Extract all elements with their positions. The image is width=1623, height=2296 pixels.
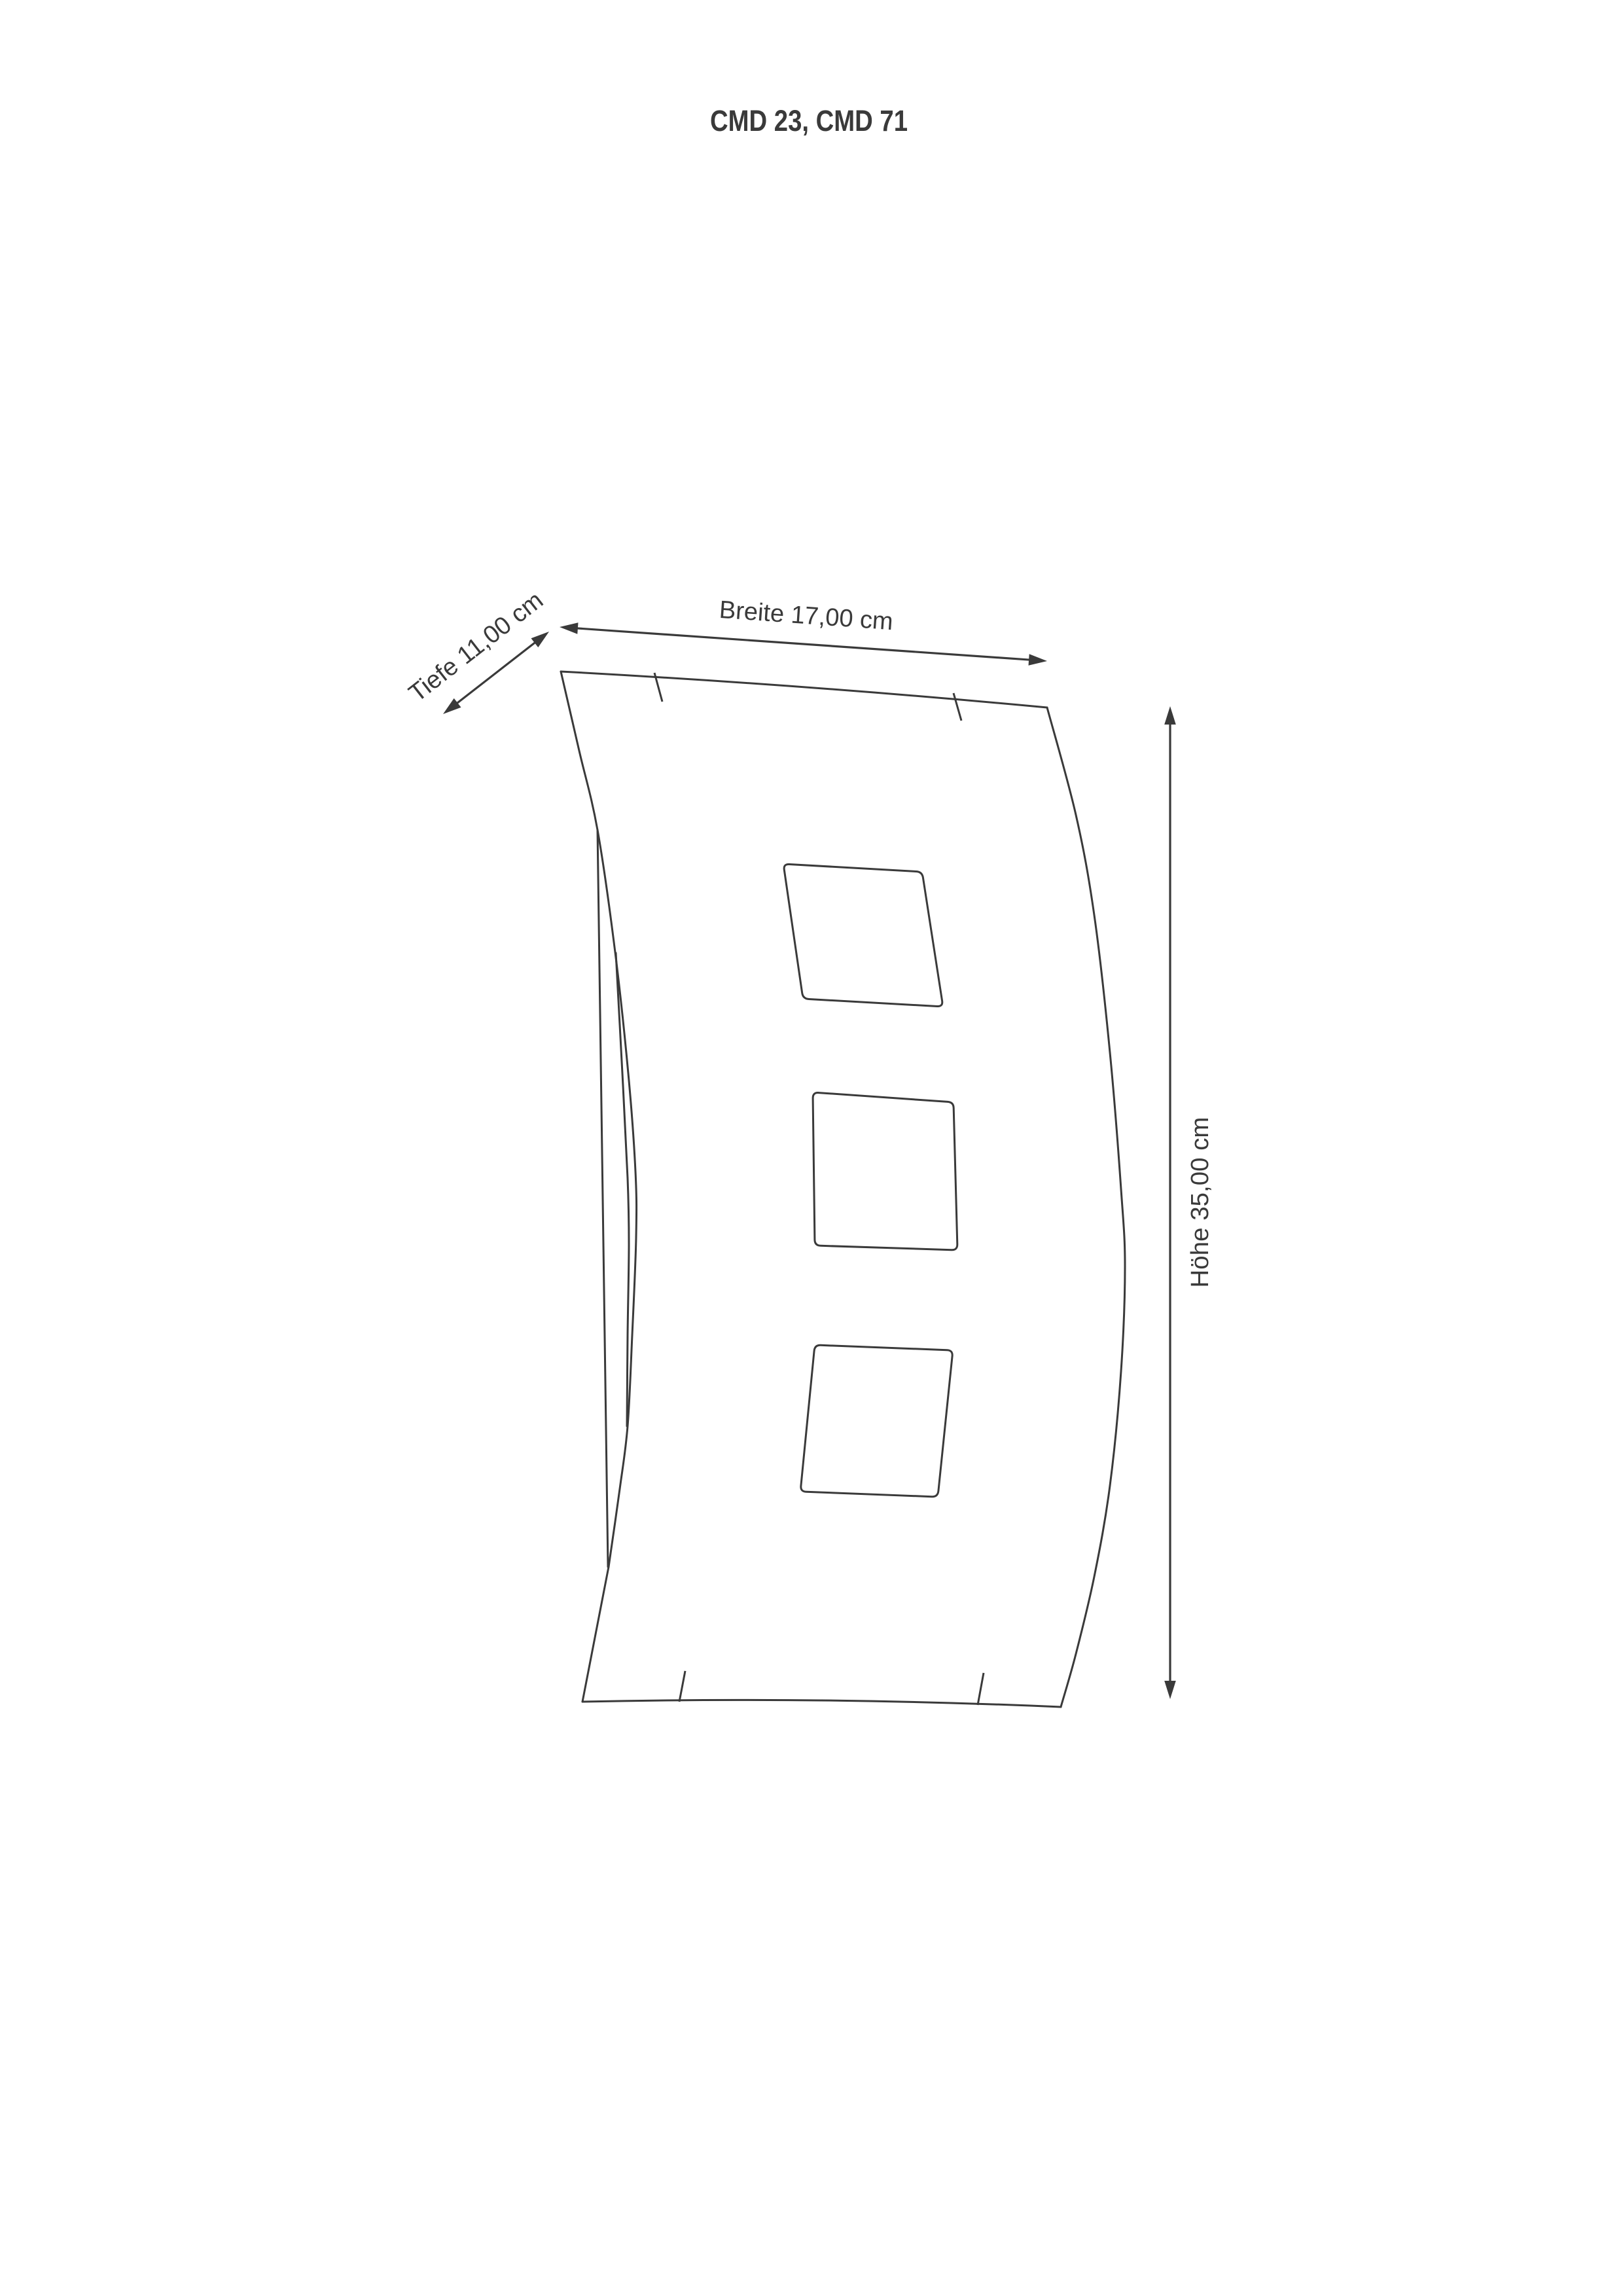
- svg-text:Höhe 35,00 cm: Höhe 35,00 cm: [1186, 1117, 1214, 1288]
- svg-text:CMD 23, CMD 71: CMD 23, CMD 71: [710, 104, 908, 137]
- svg-text:Breite 17,00 cm: Breite 17,00 cm: [719, 596, 894, 636]
